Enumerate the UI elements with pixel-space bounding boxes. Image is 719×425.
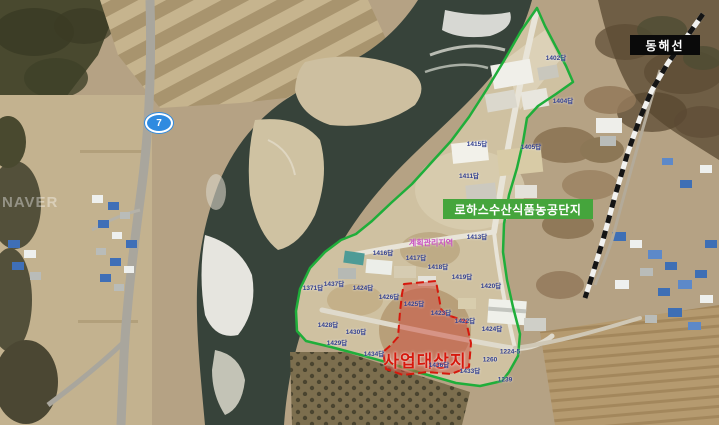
donghae-line-label: 동해선 bbox=[630, 35, 700, 55]
route-7-number: 7 bbox=[156, 118, 162, 129]
project-site-label: 사업대상지 bbox=[368, 347, 482, 372]
route-7-badge: 7 bbox=[145, 113, 173, 133]
map-canvas[interactable]: NAVER 7 로하스수산식품농공단지 동해선 사업대상지 계획관리지역 140… bbox=[0, 0, 719, 425]
aerial-imagery bbox=[0, 0, 719, 425]
complex-name-label: 로하스수산식품농공단지 bbox=[443, 199, 593, 219]
zoning-label: 계획관리지역 bbox=[409, 238, 453, 249]
naver-watermark: NAVER bbox=[2, 194, 58, 211]
